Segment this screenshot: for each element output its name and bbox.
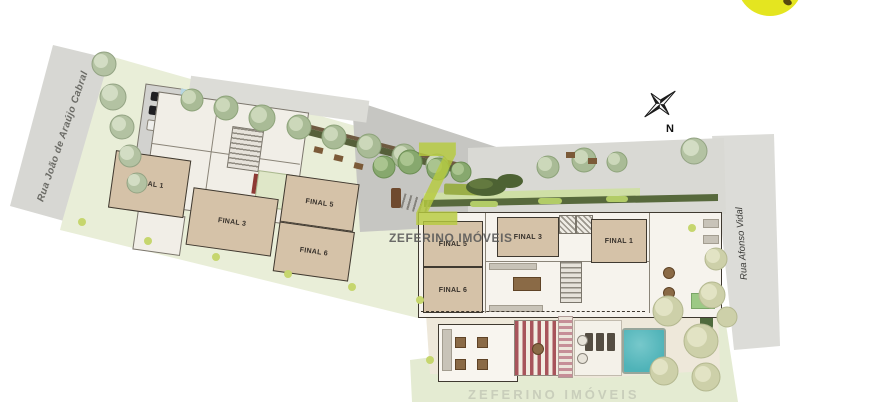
unit-label: FINAL 6 — [299, 246, 328, 257]
paving-right-plot — [468, 138, 726, 214]
tower-right: FINAL 5 FINAL 3 FINAL 1 FINAL 6 — [418, 212, 722, 318]
unit-final-1-left: FINAL 1 — [108, 150, 191, 218]
rug — [691, 293, 715, 309]
unit-label: FINAL 5 — [305, 197, 334, 208]
elevator — [559, 215, 576, 234]
unit-final-3-left: FINAL 3 — [186, 187, 279, 256]
compass-rose-icon: N — [645, 91, 676, 135]
unit-final-6-right: FINAL 6 — [423, 267, 483, 313]
wall — [485, 213, 486, 313]
dining-table — [477, 337, 488, 348]
lounger — [607, 333, 615, 351]
round-table — [663, 287, 675, 299]
tower-left: FINAL 1 FINAL 3 FINAL 5 FINAL 6 — [96, 58, 377, 288]
dining-table — [477, 359, 488, 370]
stairs — [227, 126, 265, 172]
dining-table — [513, 277, 541, 291]
dining-table — [455, 337, 466, 348]
watermark-company-name-faint: ZEFERINO IMÓVEIS — [468, 387, 640, 402]
unit-label: FINAL 3 — [514, 234, 542, 241]
street-label-right: Rua Afonso Vidal — [731, 168, 752, 318]
side-table — [577, 335, 588, 346]
side-table — [577, 353, 588, 364]
lounger — [596, 333, 604, 351]
unit-label: FINAL 1 — [605, 238, 633, 245]
stairs — [560, 261, 582, 303]
hedge-right-plot — [424, 194, 718, 207]
street-label-left: Rua João de Araújo Cabral — [29, 52, 97, 222]
dining-table — [455, 359, 466, 370]
round-table — [532, 343, 544, 355]
unit-label: FINAL 6 — [439, 287, 467, 294]
flower-trellis — [558, 316, 573, 378]
site-plan: Rua João de Araújo Cabral Rua Afonso Vid… — [0, 0, 889, 402]
kitchen-counter — [442, 329, 452, 371]
fixture — [703, 219, 719, 228]
compass-north-label: N — [666, 123, 674, 135]
unit-final-6-left: FINAL 6 — [273, 222, 355, 282]
unit-label: FINAL 3 — [218, 216, 247, 227]
gourmet-room — [438, 324, 518, 382]
yellow-circle-badge — [737, 0, 803, 16]
sun-deck — [574, 320, 622, 376]
swimming-pool — [622, 328, 666, 374]
kitchen-counter — [489, 263, 537, 270]
round-table — [663, 267, 675, 279]
balcony-line — [421, 311, 645, 312]
watermark-company-name: ZEFERINO IMÓVEIS — [389, 231, 513, 245]
driveway-bench — [391, 188, 401, 208]
wall — [649, 213, 650, 313]
pergola — [514, 320, 560, 376]
fixture — [703, 235, 719, 244]
watermark-logo-z: Z — [414, 138, 459, 232]
unit-final-1-right: FINAL 1 — [591, 219, 647, 263]
unit-label: FINAL 1 — [135, 179, 164, 190]
